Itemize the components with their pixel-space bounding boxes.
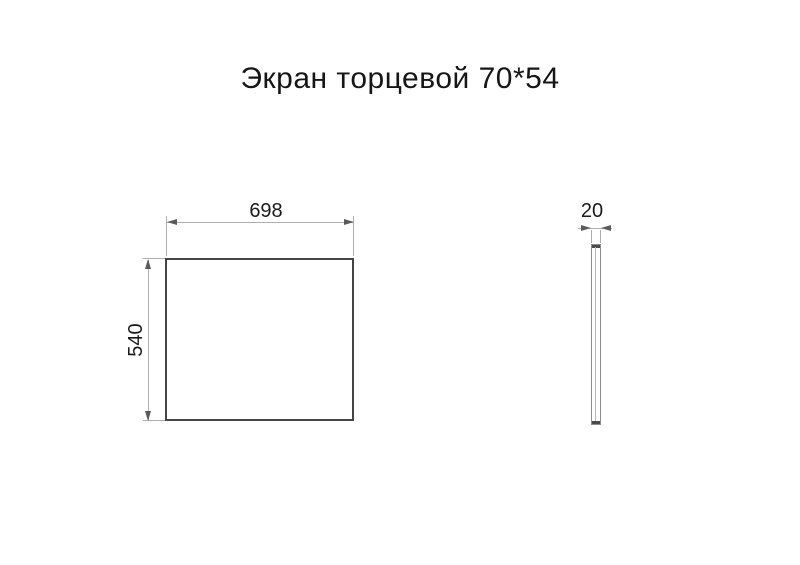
arrowhead-width-left	[167, 219, 177, 225]
thickness-dimension-label: 20	[572, 201, 612, 221]
arrowhead-thickness-right	[601, 225, 611, 231]
side-view-outline	[591, 244, 601, 425]
dimension-line-width	[167, 222, 354, 223]
arrowhead-height-bottom	[145, 411, 151, 421]
drawing-canvas: Экран торцевой 70*54 698 540 20	[0, 0, 800, 565]
side-view-bottom-edge	[592, 421, 600, 424]
arrowhead-height-top	[145, 259, 151, 269]
side-view-top-edge	[592, 245, 600, 248]
arrowhead-width-right	[344, 219, 354, 225]
height-dimension-label: 540	[126, 310, 146, 370]
front-view-outline	[165, 258, 354, 421]
side-view-inner-line	[595, 247, 596, 422]
arrowhead-thickness-left	[581, 225, 591, 231]
width-dimension-label: 698	[236, 201, 296, 221]
drawing-title: Экран торцевой 70*54	[0, 62, 800, 96]
extension-line-thickness-left	[591, 230, 592, 243]
dimension-line-height	[148, 260, 149, 420]
extension-line-thickness-right	[600, 230, 601, 243]
